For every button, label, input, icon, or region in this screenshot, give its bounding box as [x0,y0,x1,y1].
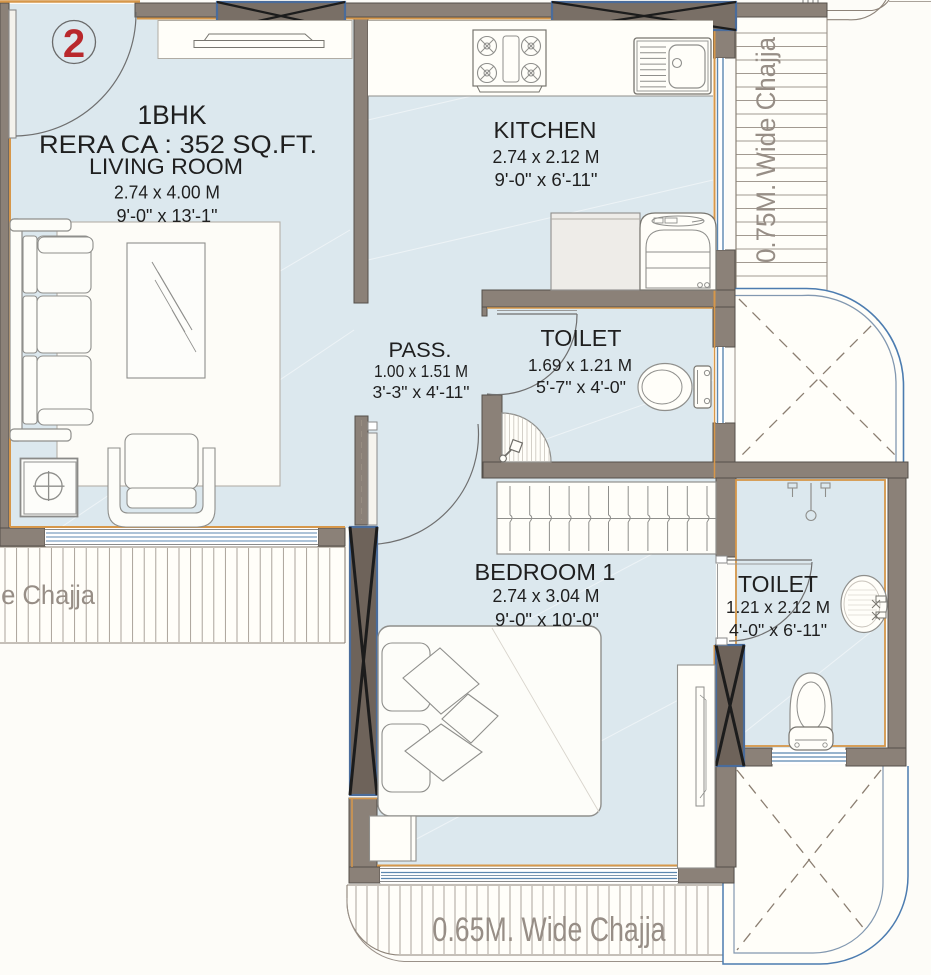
svg-text:BEDROOM 1: BEDROOM 1 [475,559,616,585]
svg-text:0.65M. Wide Chajja: 0.65M. Wide Chajja [433,911,666,949]
svg-text:2: 2 [63,22,85,66]
svg-text:KITCHEN: KITCHEN [494,117,597,143]
svg-text:LIVING ROOM: LIVING ROOM [89,154,243,179]
svg-text:1BHK: 1BHK [138,100,207,130]
svg-text:1.21 x 2.12 M: 1.21 x 2.12 M [726,597,830,617]
svg-text:0.75M. Wide Chajja: 0.75M. Wide Chajja [751,36,781,263]
svg-text:1.69 x 1.21 M: 1.69 x 1.21 M [528,355,632,375]
svg-text:3'-3" x 4'-11": 3'-3" x 4'-11" [373,382,470,402]
svg-text:TOILET: TOILET [541,325,622,351]
svg-text:PASS.: PASS. [389,339,452,362]
svg-text:4'-0" x 6'-11": 4'-0" x 6'-11" [729,620,827,640]
svg-text:9'-0" x 13'-1": 9'-0" x 13'-1" [117,206,218,226]
svg-text:2.74 x 2.12 M: 2.74 x 2.12 M [493,147,600,167]
svg-text:TOILET: TOILET [738,571,818,597]
svg-text:2.74 x 3.04 M: 2.74 x 3.04 M [493,586,600,606]
svg-text:9'-0" x 10'-0": 9'-0" x 10'-0" [495,610,599,630]
svg-text:5'-7" x 4'-0": 5'-7" x 4'-0" [536,377,626,397]
svg-text:1.00 x 1.51 M: 1.00 x 1.51 M [374,361,468,381]
svg-text:Wide Chajja: Wide Chajja [0,580,96,610]
svg-text:2.74 x 4.00 M: 2.74 x 4.00 M [114,183,220,203]
svg-text:9'-0" x 6'-11": 9'-0" x 6'-11" [495,170,598,190]
